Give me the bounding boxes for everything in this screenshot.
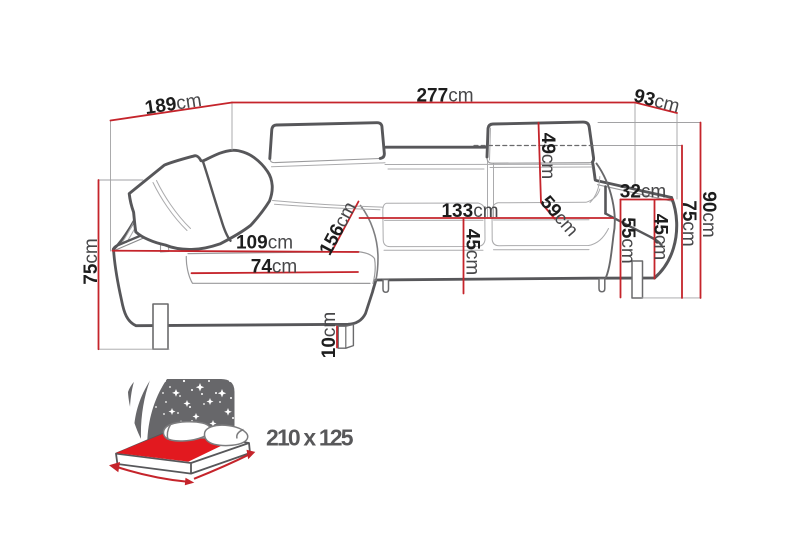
- svg-text:49cm: 49cm: [537, 133, 558, 179]
- svg-text:277cm: 277cm: [416, 86, 473, 107]
- svg-text:74cm: 74cm: [251, 257, 297, 278]
- svg-text:10cm: 10cm: [319, 312, 340, 358]
- svg-text:210 x 125: 210 x 125: [266, 425, 354, 451]
- svg-text:109cm: 109cm: [236, 233, 293, 254]
- svg-text:133cm: 133cm: [441, 201, 498, 222]
- svg-text:45cm: 45cm: [462, 229, 483, 275]
- svg-text:32cm: 32cm: [620, 182, 666, 203]
- svg-text:45cm: 45cm: [650, 214, 671, 260]
- svg-text:75cm: 75cm: [81, 238, 102, 284]
- svg-text:75cm: 75cm: [678, 200, 699, 246]
- svg-text:55cm: 55cm: [617, 217, 638, 263]
- svg-text:90cm: 90cm: [698, 191, 719, 237]
